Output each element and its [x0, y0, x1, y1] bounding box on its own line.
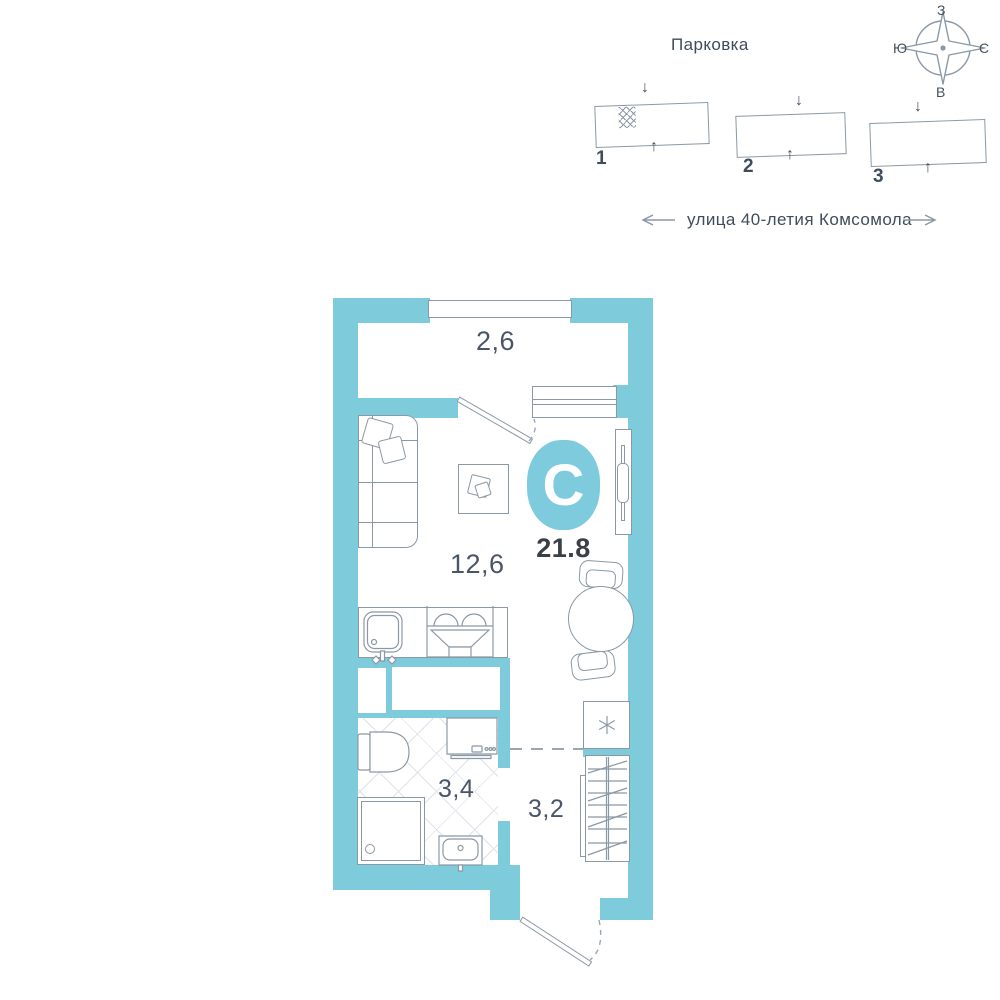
stove [426, 606, 494, 658]
entrance-door-leaf [519, 916, 592, 966]
tv-stand [617, 463, 629, 503]
chair-seat [577, 650, 609, 672]
chair [569, 646, 616, 681]
entry-arrow-up-icon: ↑ [786, 147, 794, 163]
wall-entry-foot-right [600, 898, 628, 920]
street-name: улица 40-летия Комсомола [687, 210, 912, 230]
parking-block-2-number: 2 [743, 156, 754, 178]
vent-shaft-small [358, 668, 386, 713]
parking-block-3-number: 3 [873, 166, 884, 188]
entry-arrow-up-icon: ↑ [650, 139, 658, 155]
compass-bottom-label: В [936, 84, 945, 100]
balcony-area-label: 2,6 [476, 326, 515, 357]
wall-bathroom-bottom [333, 865, 520, 890]
brand-logo: C [527, 440, 600, 530]
dining-table [568, 586, 634, 652]
entry-arrow-down-icon: ↓ [914, 99, 922, 115]
sofa-armrest-line [359, 522, 417, 523]
wardrobe-hatching [585, 755, 630, 862]
brand-logo-letter: C [543, 452, 585, 519]
street-left-arrow-icon [641, 213, 677, 227]
compass-right-label: С [979, 40, 989, 56]
wardrobe-door [580, 775, 586, 857]
compass-left-label: Ю [893, 40, 907, 56]
entry-arrow-down-icon: ↓ [795, 93, 803, 109]
bathroom-sink [438, 835, 484, 873]
toilet [356, 726, 412, 778]
bathroom-area-label: 3,4 [438, 775, 474, 804]
wall-bathroom-right-lower [498, 821, 510, 865]
radiator [532, 386, 617, 418]
entry-arrow-up-icon: ↑ [924, 160, 932, 176]
wall-left [333, 298, 358, 890]
floorplan-page: З Ю С В Парковка 1 2 3 ↓ ↑ ↓ ↑ ↓ ↑ улица… [0, 0, 1000, 1000]
compass-top-label: З [937, 2, 945, 18]
balcony-window [428, 300, 572, 318]
living-area-label: 12,6 [450, 549, 505, 580]
kitchen-sink [363, 611, 405, 665]
radiator-line [533, 404, 616, 405]
total-area-label: 21.8 [527, 533, 600, 564]
entry-arrow-down-icon: ↓ [641, 80, 649, 96]
balcony-door-leaf [457, 396, 534, 444]
asterisk-icon [597, 715, 617, 735]
shower-drain [365, 844, 375, 854]
parking-block-1-number: 1 [596, 148, 607, 170]
parking-block-1-hatch [618, 107, 636, 129]
wall-entry-step-left [490, 890, 520, 920]
washing-machine [446, 717, 498, 761]
parking-title: Парковка [671, 35, 749, 55]
vent-shaft-large [392, 667, 500, 710]
radiator-line [533, 399, 616, 400]
street-right-arrow-icon [901, 213, 937, 227]
hallway-area-label: 3,2 [528, 795, 564, 824]
sofa-seat-line [359, 482, 417, 483]
